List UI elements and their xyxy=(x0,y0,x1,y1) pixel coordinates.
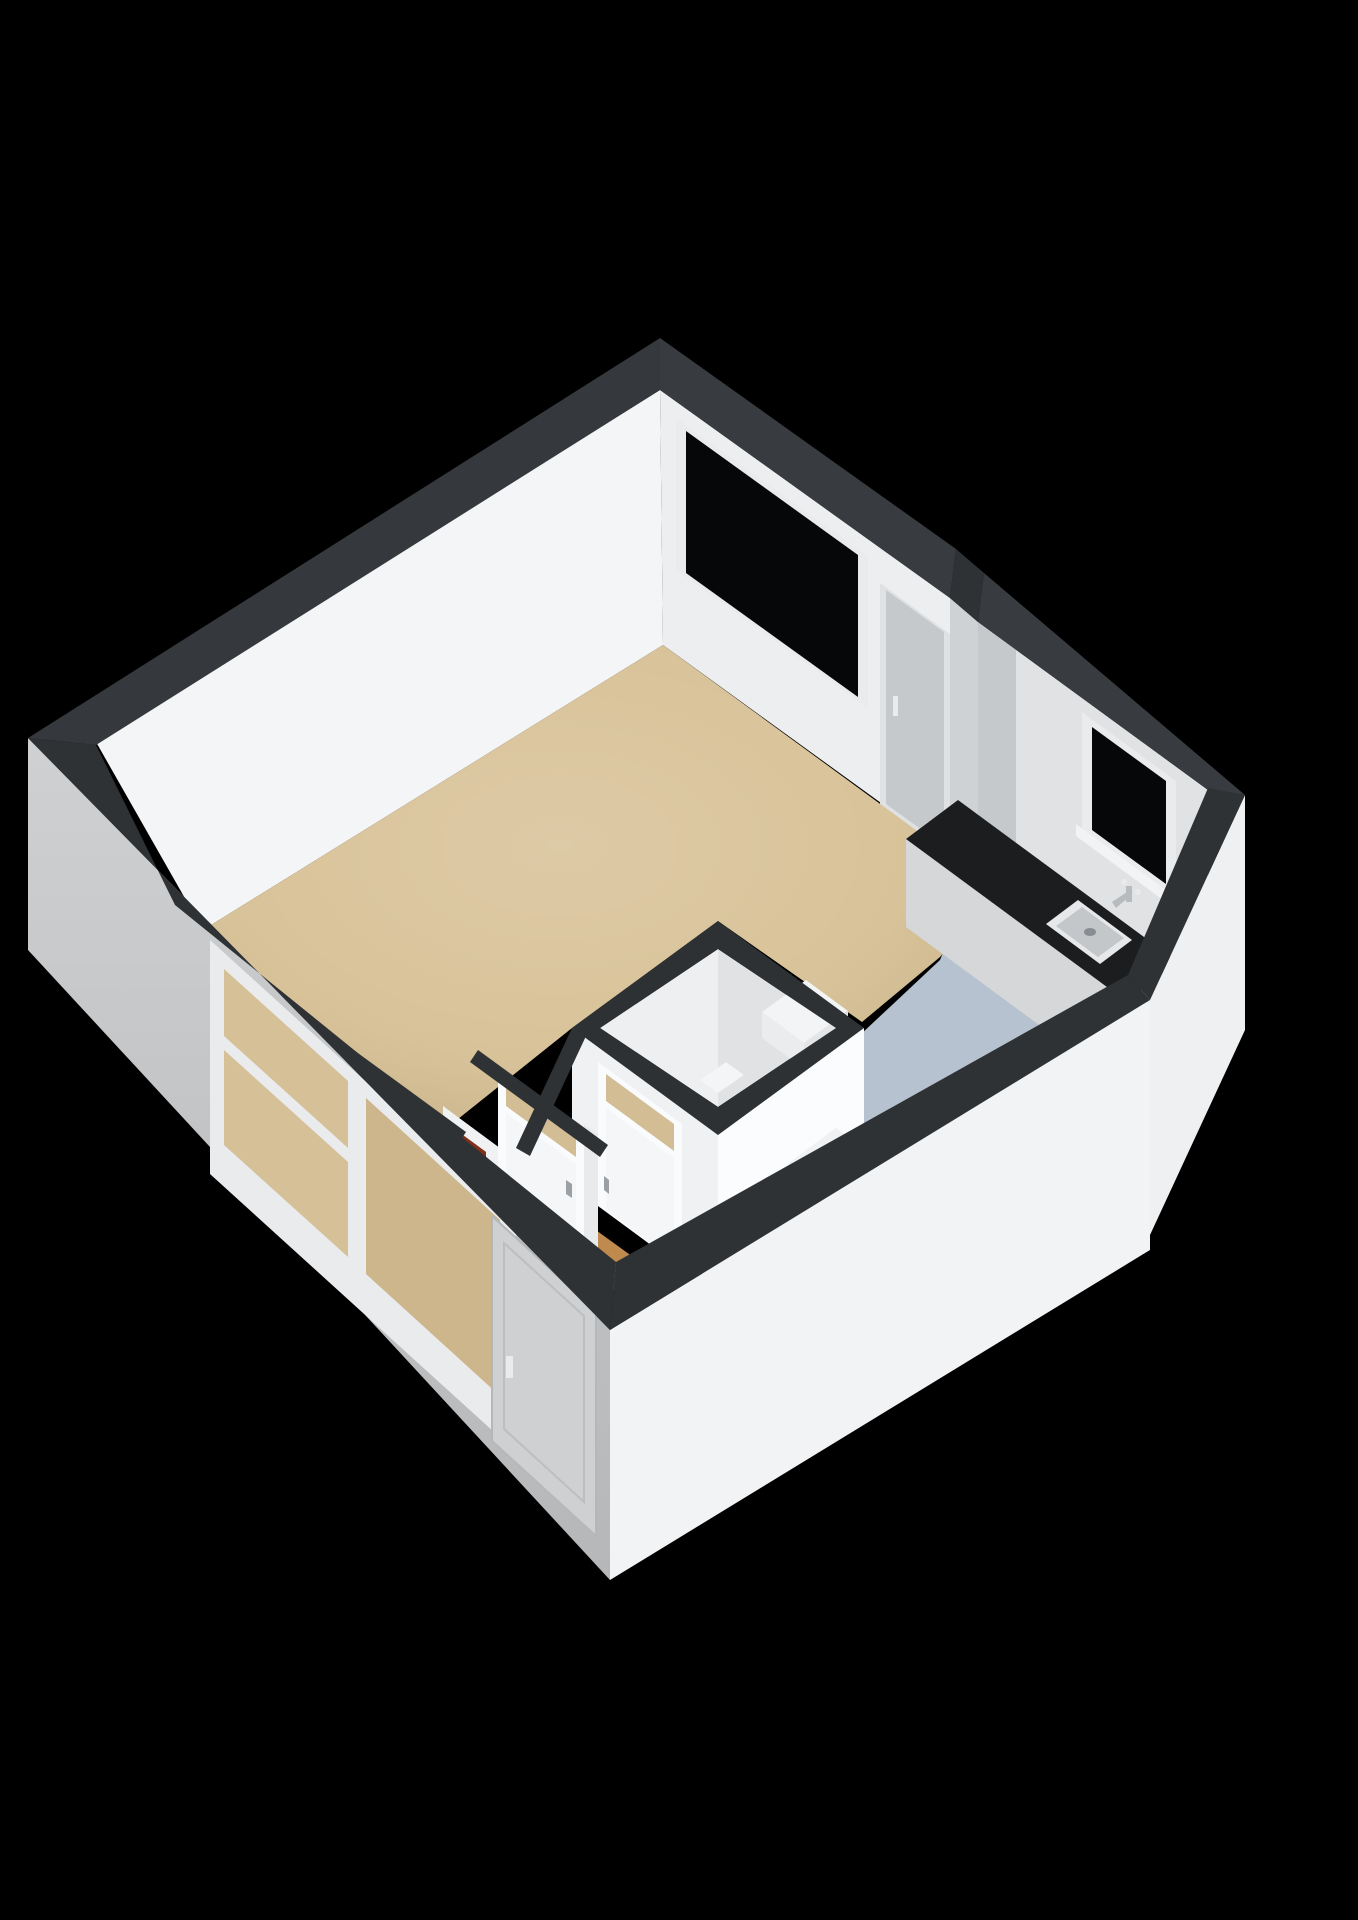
floorplan-3d-render xyxy=(0,0,1358,1920)
faucet-handle-right xyxy=(1135,889,1141,895)
door-ne-handle xyxy=(893,696,898,716)
faucet-handle-left xyxy=(1121,879,1127,885)
door-ne-leaf xyxy=(886,590,944,846)
floorplan-canvas xyxy=(0,0,1358,1920)
entry-door-handle xyxy=(506,1356,513,1378)
sink-drain xyxy=(1084,928,1096,936)
